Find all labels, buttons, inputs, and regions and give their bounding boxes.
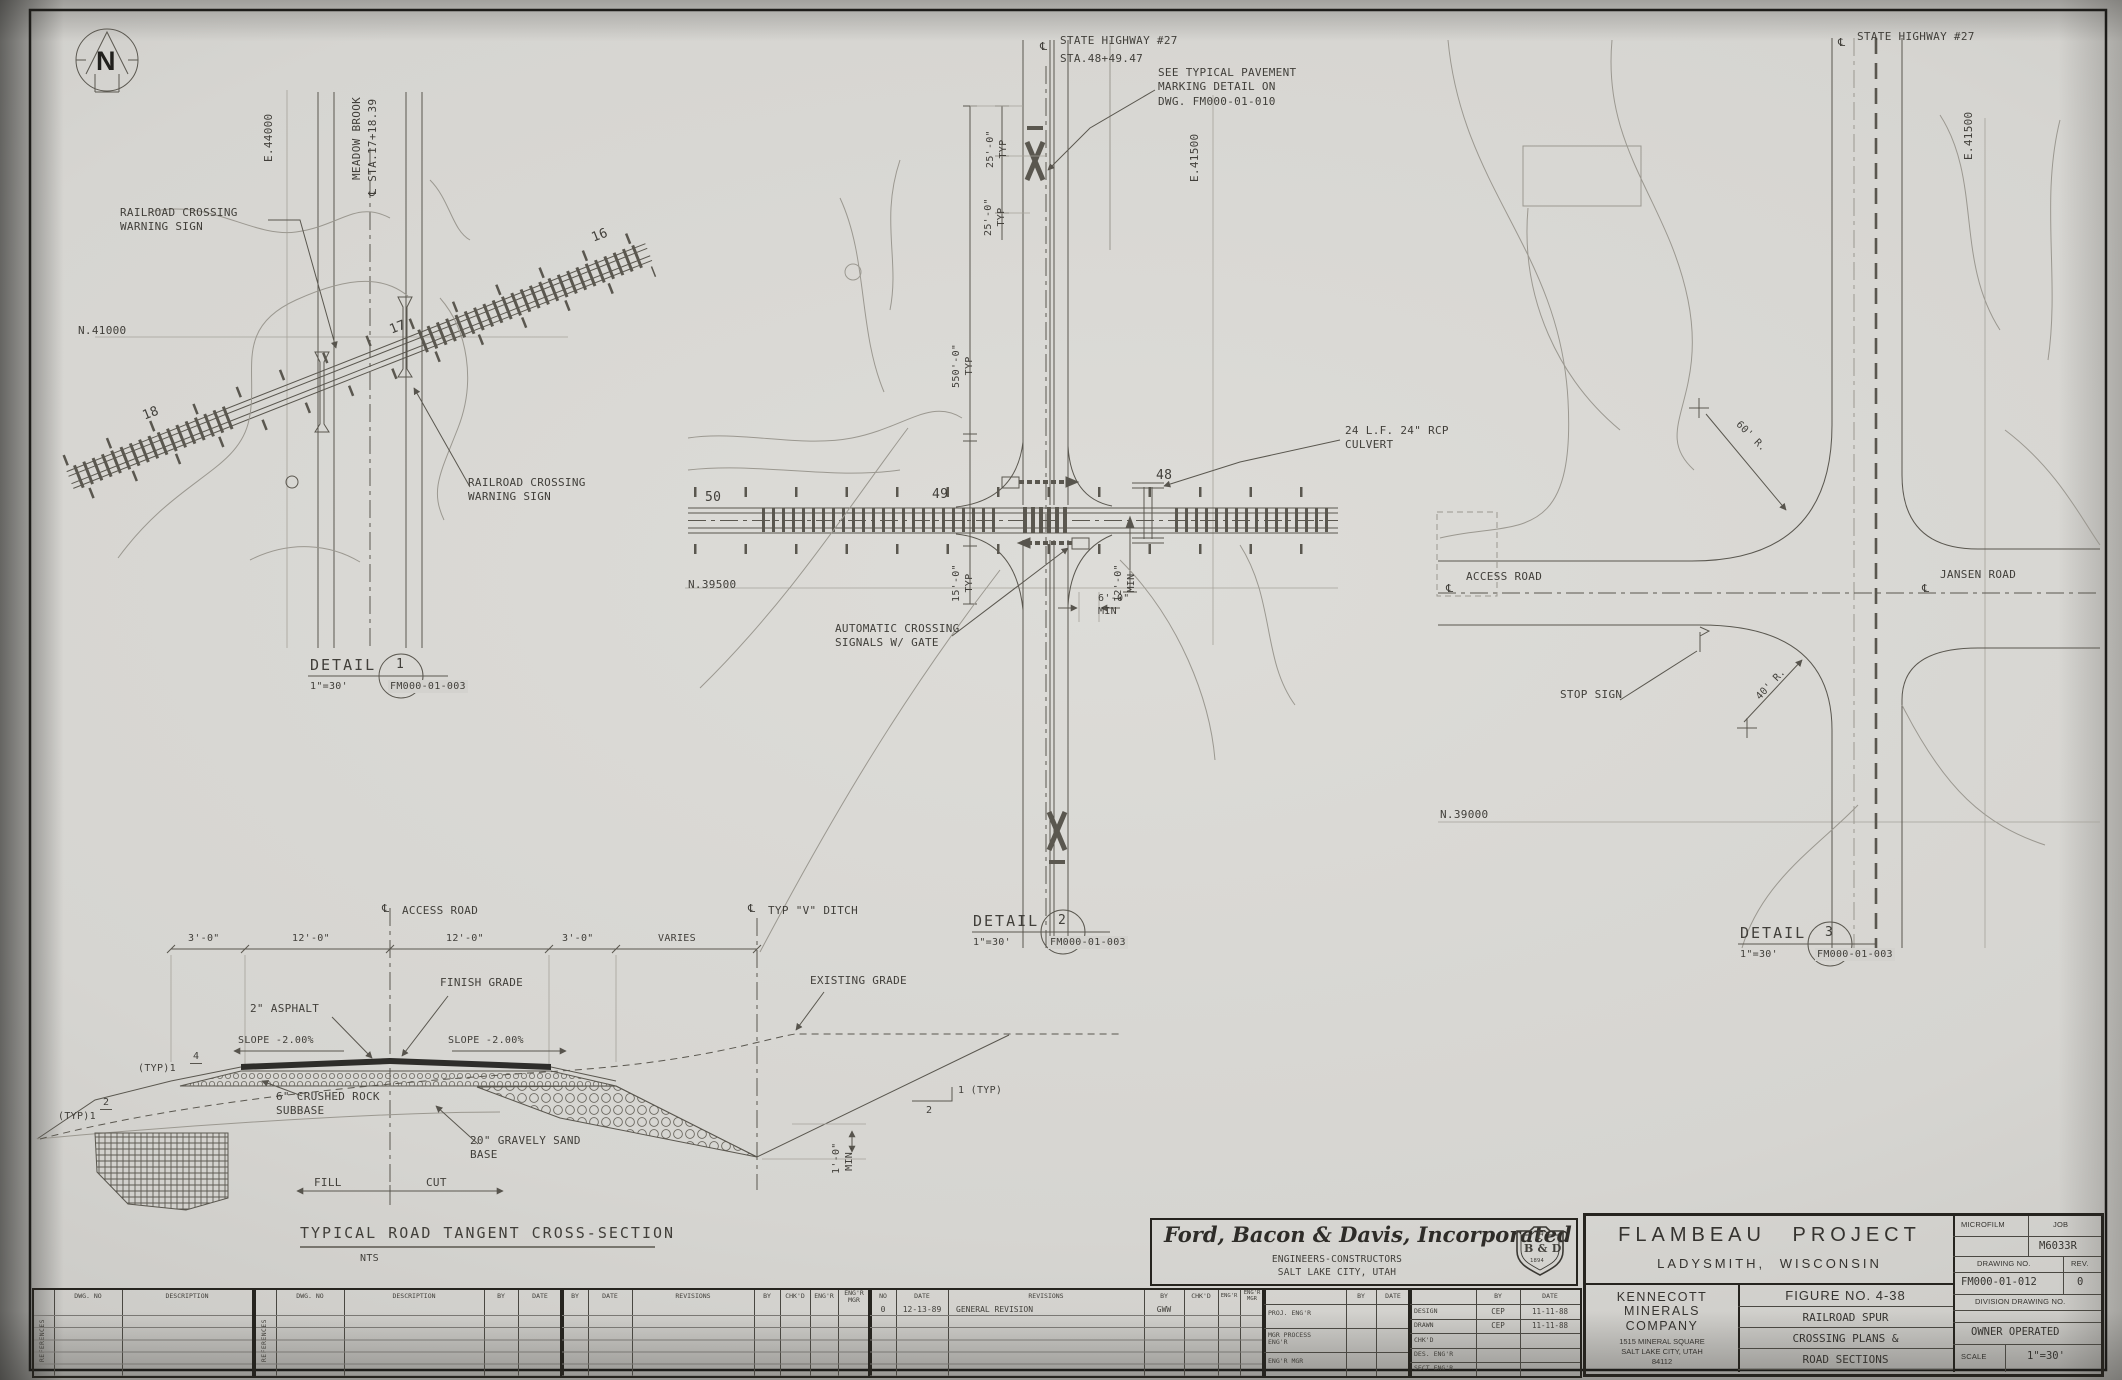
col-by: BY [562, 1293, 588, 1300]
meta-row-scale: SCALE 1"=30' [1953, 1344, 2101, 1372]
figure-title-1: RAILROAD SPUR [1738, 1307, 1953, 1328]
centerline-icon [1838, 36, 1845, 50]
stamp-mgr-process: MGR PROCESS ENG'R [1268, 1332, 1344, 1346]
drawing-number: FM000-01-012 [1961, 1276, 2037, 1288]
owner-cell: KENNECOTT MINERALS COMPANY 1515 MINERAL … [1586, 1285, 1740, 1372]
stamp-drawn-by: CEP [1476, 1322, 1520, 1330]
project-cell: FLAMBEAU PROJECT LADYSMITH, WISCONSIN [1586, 1216, 1955, 1285]
col-by: BY [754, 1293, 780, 1300]
col-revisions: REVISIONS [948, 1293, 1144, 1300]
col-engr-mgr: ENG'R MGR [838, 1290, 870, 1304]
meta-row-division: DIVISION DRAWING NO. [1953, 1294, 2101, 1311]
col-engr-mgr: ENG'R MGR [1240, 1290, 1264, 1302]
figure-number: FIGURE NO. 4-38 [1738, 1285, 1953, 1307]
owner-operated: OWNER OPERATED [1971, 1326, 2060, 1338]
pavement-marking-note: SEE TYPICAL PAVEMENT MARKING DETAIL ON D… [1158, 66, 1296, 109]
hwy27-label-d3: STATE HIGHWAY #27 [1857, 30, 1975, 44]
firm-sub1: ENGINEERS-CONSTRUCTORS [1164, 1254, 1510, 1266]
scale-value: 1"=30' [2027, 1350, 2065, 1362]
col-engr: ENG'R [1218, 1293, 1240, 1299]
centerline-icon [748, 902, 755, 916]
rev-number: 0 [2077, 1276, 2083, 1288]
centerline-icon [382, 902, 389, 916]
culvert-label: 24 L.F. 24" RCP CULVERT [1345, 424, 1449, 453]
dim-25ft-a: 25'-0" TYP [984, 130, 1010, 168]
col-by: BY [1476, 1293, 1520, 1300]
brook-station-label: STA.17+18.39 [366, 99, 380, 196]
col-by: BY [1346, 1293, 1376, 1300]
crossing-signals-label: AUTOMATIC CROSSING SIGNALS W/ GATE [835, 622, 960, 651]
grid-label-e44000: E.44000 [262, 114, 276, 162]
slope-2to1-label: (TYP)1 [58, 1110, 96, 1123]
slope-left-label: SLOPE -2.00% [238, 1034, 314, 1047]
stamp-design-by: CEP [1476, 1308, 1520, 1316]
xs-dim-varies: VARIES [658, 932, 696, 945]
track-station-49: 49 [932, 487, 948, 504]
project-location: LADYSMITH, WISCONSIN [1586, 1256, 1953, 1271]
meta-row-owner-operated: OWNER OPERATED [1953, 1322, 2101, 1345]
grid-label-e41500: E.41500 [1188, 134, 1202, 182]
existing-grade-label: EXISTING GRADE [810, 974, 907, 988]
xs-vditch-label: TYP "V" DITCH [768, 904, 858, 918]
subbase-label: 6" CRUSHED ROCK SUBBASE [276, 1090, 380, 1119]
col-chkd: CHK'D [780, 1293, 810, 1300]
access-road-label: ACCESS ROAD [1466, 570, 1542, 584]
detail1-linework [63, 90, 656, 698]
col-engr: ENG'R [810, 1293, 838, 1300]
track-station-50: 50 [705, 490, 721, 507]
xs-access-road-label: ACCESS ROAD [402, 904, 478, 918]
col-by: BY [486, 1293, 516, 1300]
detail1-callout-scale: 1"=30' [310, 680, 348, 693]
rev-entry-by: GWW [1144, 1306, 1184, 1315]
rr-warning-sign-label: RAILROAD CROSSING WARNING SIGN [120, 206, 238, 235]
shield-monogram-bd: B & D [1524, 1242, 1561, 1256]
detail3-callout-title: DETAIL [1740, 924, 1806, 944]
detail1-callout-number: 1 [396, 657, 404, 674]
stamp-chkd: CHK'D [1414, 1337, 1474, 1344]
dim-25ft-b: 25'-0" TYP [982, 198, 1008, 236]
hwy27-station-label: STA.48+49.47 [1060, 52, 1143, 66]
detail1-callout-ref: FM000-01-003 [388, 680, 468, 693]
track-station-48: 48 [1156, 468, 1172, 485]
stamp-drawn-date: 11-11-88 [1520, 1322, 1580, 1330]
col-description: DESCRIPTION [348, 1293, 480, 1300]
references-table-1: REFERENCES DWG. NO DESCRIPTION [32, 1288, 254, 1378]
owner-name: KENNECOTT MINERALS COMPANY [1586, 1290, 1738, 1333]
col-date: DATE [1376, 1293, 1410, 1300]
stamp-engr-mgr: ENG'R MGR [1268, 1358, 1344, 1365]
col-date: DATE [1520, 1293, 1580, 1300]
meadow-brook-label: MEADOW BROOK [350, 97, 364, 180]
rev-label: REV. [2071, 1259, 2089, 1268]
detail3-callout-number: 3 [1825, 925, 1833, 942]
stamp-proj-engr: PROJ. ENG'R [1268, 1310, 1344, 1317]
detail1-callout-title: DETAIL [310, 656, 376, 676]
xs-dim-3ft-r: 3'-0" [562, 932, 594, 945]
col-dwg-no: DWG. NO [280, 1293, 340, 1300]
project-title-block: FLAMBEAU PROJECT LADYSMITH, WISCONSIN KE… [1583, 1213, 2104, 1377]
detail3-linework [1437, 38, 2100, 966]
col-no: NO [870, 1293, 896, 1300]
cross-section-title: TYPICAL ROAD TANGENT CROSS-SECTION [300, 1224, 675, 1244]
building-outline [1523, 146, 1641, 206]
stop-sign-symbol-icon [1700, 627, 1709, 652]
col-date: DATE [896, 1293, 948, 1300]
meta-row-dwg-no: FM000-01-012 0 [1953, 1272, 2101, 1295]
cross-section-linework [37, 908, 1122, 1247]
detail2-callout-scale: 1"=30' [973, 936, 1011, 949]
grid-label-n39500: N.39500 [688, 578, 736, 592]
shield-monogram-f: F [1536, 1228, 1545, 1243]
detail2-callout-ref: FM000-01-003 [1048, 936, 1128, 949]
drawing-sheet: N E.44000 MEADOW BROOK STA.17+18.39 RAIL… [0, 0, 2122, 1380]
stamp-drawn: DRAWN [1414, 1322, 1474, 1329]
hwy27-label: STATE HIGHWAY #27 [1060, 34, 1178, 48]
detail2-callout-number: 2 [1058, 913, 1066, 930]
dim-15ft: 15'-0" TYP [950, 564, 976, 602]
col-description: DESCRIPTION [126, 1293, 248, 1300]
figure-title-3: ROAD SECTIONS [1738, 1349, 1953, 1370]
job-label: JOB [2053, 1220, 2068, 1229]
ditch-depth-dim: 1'-0" MIN. [830, 1142, 856, 1174]
stamp-des-engr: DES. ENG'R [1414, 1351, 1474, 1358]
finish-grade-label: FINISH GRADE [440, 976, 523, 990]
col-by: BY [1144, 1293, 1184, 1300]
col-date: DATE [588, 1293, 632, 1300]
cut-label: CUT [426, 1176, 447, 1190]
cut-slope-1typ: 1 (TYP) [958, 1084, 1002, 1097]
firm-sub2: SALT LAKE CITY, UTAH [1164, 1267, 1510, 1279]
centerline-icon [1922, 582, 1929, 596]
base-label: 20" GRAVELY SAND BASE [470, 1134, 581, 1163]
dim-6ft: 6'-0" MIN [1098, 592, 1130, 618]
stamp-design: DESIGN [1414, 1308, 1474, 1315]
north-letter: N [96, 46, 116, 77]
job-number: M6033R [2039, 1240, 2077, 1252]
xs-dim-12ft-l: 12'-0" [292, 932, 330, 945]
rr-warning-sign-label-2: RAILROAD CROSSING WARNING SIGN [468, 476, 586, 505]
crossing-gate-icon [1002, 477, 1078, 488]
rev-entry-no: 0 [870, 1306, 896, 1315]
slope-4to1-label: (TYP)1 [138, 1062, 176, 1075]
jansen-road-label: JANSEN ROAD [1940, 568, 2016, 582]
revisions-table-right: NO DATE REVISIONS BY CHK'D ENG'R ENG'R M… [868, 1288, 1266, 1378]
stamp-sect-engr: SECT ENG'R [1414, 1365, 1474, 1372]
revisions-table-left: BY DATE REVISIONS BY CHK'D ENG'R ENG'R M… [560, 1288, 872, 1378]
xs-dim-3ft-l: 3'-0" [188, 932, 220, 945]
detail3-callout-scale: 1"=30' [1740, 948, 1778, 961]
meta-row-dwg-label: DRAWING NO. REV. [1953, 1256, 2101, 1273]
drawing-no-label: DRAWING NO. [1977, 1259, 2031, 1268]
asphalt-label: 2" ASPHALT [250, 1002, 319, 1016]
owner-address: 1515 MINERAL SQUARE SALT LAKE CITY, UTAH… [1586, 1337, 1738, 1366]
division-label: DIVISION DRAWING NO. [1975, 1297, 2065, 1306]
grid-label-e41500-d3: E.41500 [1962, 112, 1976, 160]
rev-entry-date: 12-13-89 [896, 1306, 948, 1315]
centerline-icon [1446, 582, 1453, 596]
cut-slope-2: 2 [926, 1104, 932, 1117]
meta-column: MICROFILM JOB M6033R DRAWING NO. REV. FM… [1953, 1216, 2101, 1372]
rev-entry-desc: GENERAL REVISION [956, 1306, 1152, 1315]
detail2-linework [685, 40, 1340, 954]
project-name: FLAMBEAU PROJECT [1586, 1224, 1953, 1247]
slope-right-label: SLOPE -2.00% [448, 1034, 524, 1047]
firm-name: Ford, Bacon & Davis, Incorporated [1164, 1222, 1510, 1247]
detail3-callout-ref: FM000-01-003 [1815, 948, 1895, 961]
references-table-2: REFERENCES DWG. NO DESCRIPTION BY DATE [254, 1288, 564, 1378]
figure-title-2: CROSSING PLANS & [1738, 1328, 1953, 1349]
stamp-table-right: BY DATE DESIGN CEP 11-11-88 DRAWN CEP 11… [1408, 1288, 1582, 1378]
firm-banner: Ford, Bacon & Davis, Incorporated ENGINE… [1150, 1218, 1578, 1286]
xs-dim-12ft-r: 12'-0" [446, 932, 484, 945]
col-dwg-no: DWG. NO [58, 1293, 118, 1300]
col-revisions: REVISIONS [632, 1293, 754, 1300]
stamp-table-left: BY DATE PROJ. ENG'R MGR PROCESS ENG'R EN… [1262, 1288, 1412, 1378]
col-chkd: CHK'D [1184, 1293, 1218, 1300]
meta-row-microfilm: MICROFILM JOB [1953, 1216, 2101, 1237]
grid-label-n41000: N.41000 [78, 324, 126, 338]
meta-row-job: M6033R [1953, 1236, 2101, 1257]
microfilm-label: MICROFILM [1961, 1220, 2005, 1229]
slope-4to1-num: 4 [190, 1050, 202, 1064]
centerline-icon [1040, 40, 1047, 54]
figure-cell: FIGURE NO. 4-38 RAILROAD SPUR CROSSING P… [1738, 1285, 1955, 1372]
centerline-icon [366, 189, 379, 196]
detail2-callout-title: DETAIL [973, 912, 1039, 932]
fill-label: FILL [314, 1176, 342, 1190]
scale-label: SCALE [1961, 1352, 1987, 1361]
cross-section-scale: NTS [360, 1252, 379, 1265]
col-date: DATE [520, 1293, 560, 1300]
stamp-design-date: 11-11-88 [1520, 1308, 1580, 1316]
shield-year: 1894 [1530, 1258, 1544, 1265]
slope-2to1-num: 2 [100, 1096, 112, 1110]
stop-sign-label: STOP SIGN [1560, 688, 1622, 702]
grid-label-n39000: N.39000 [1440, 808, 1488, 822]
dim-550ft: 550'-0" TYP [950, 344, 976, 388]
